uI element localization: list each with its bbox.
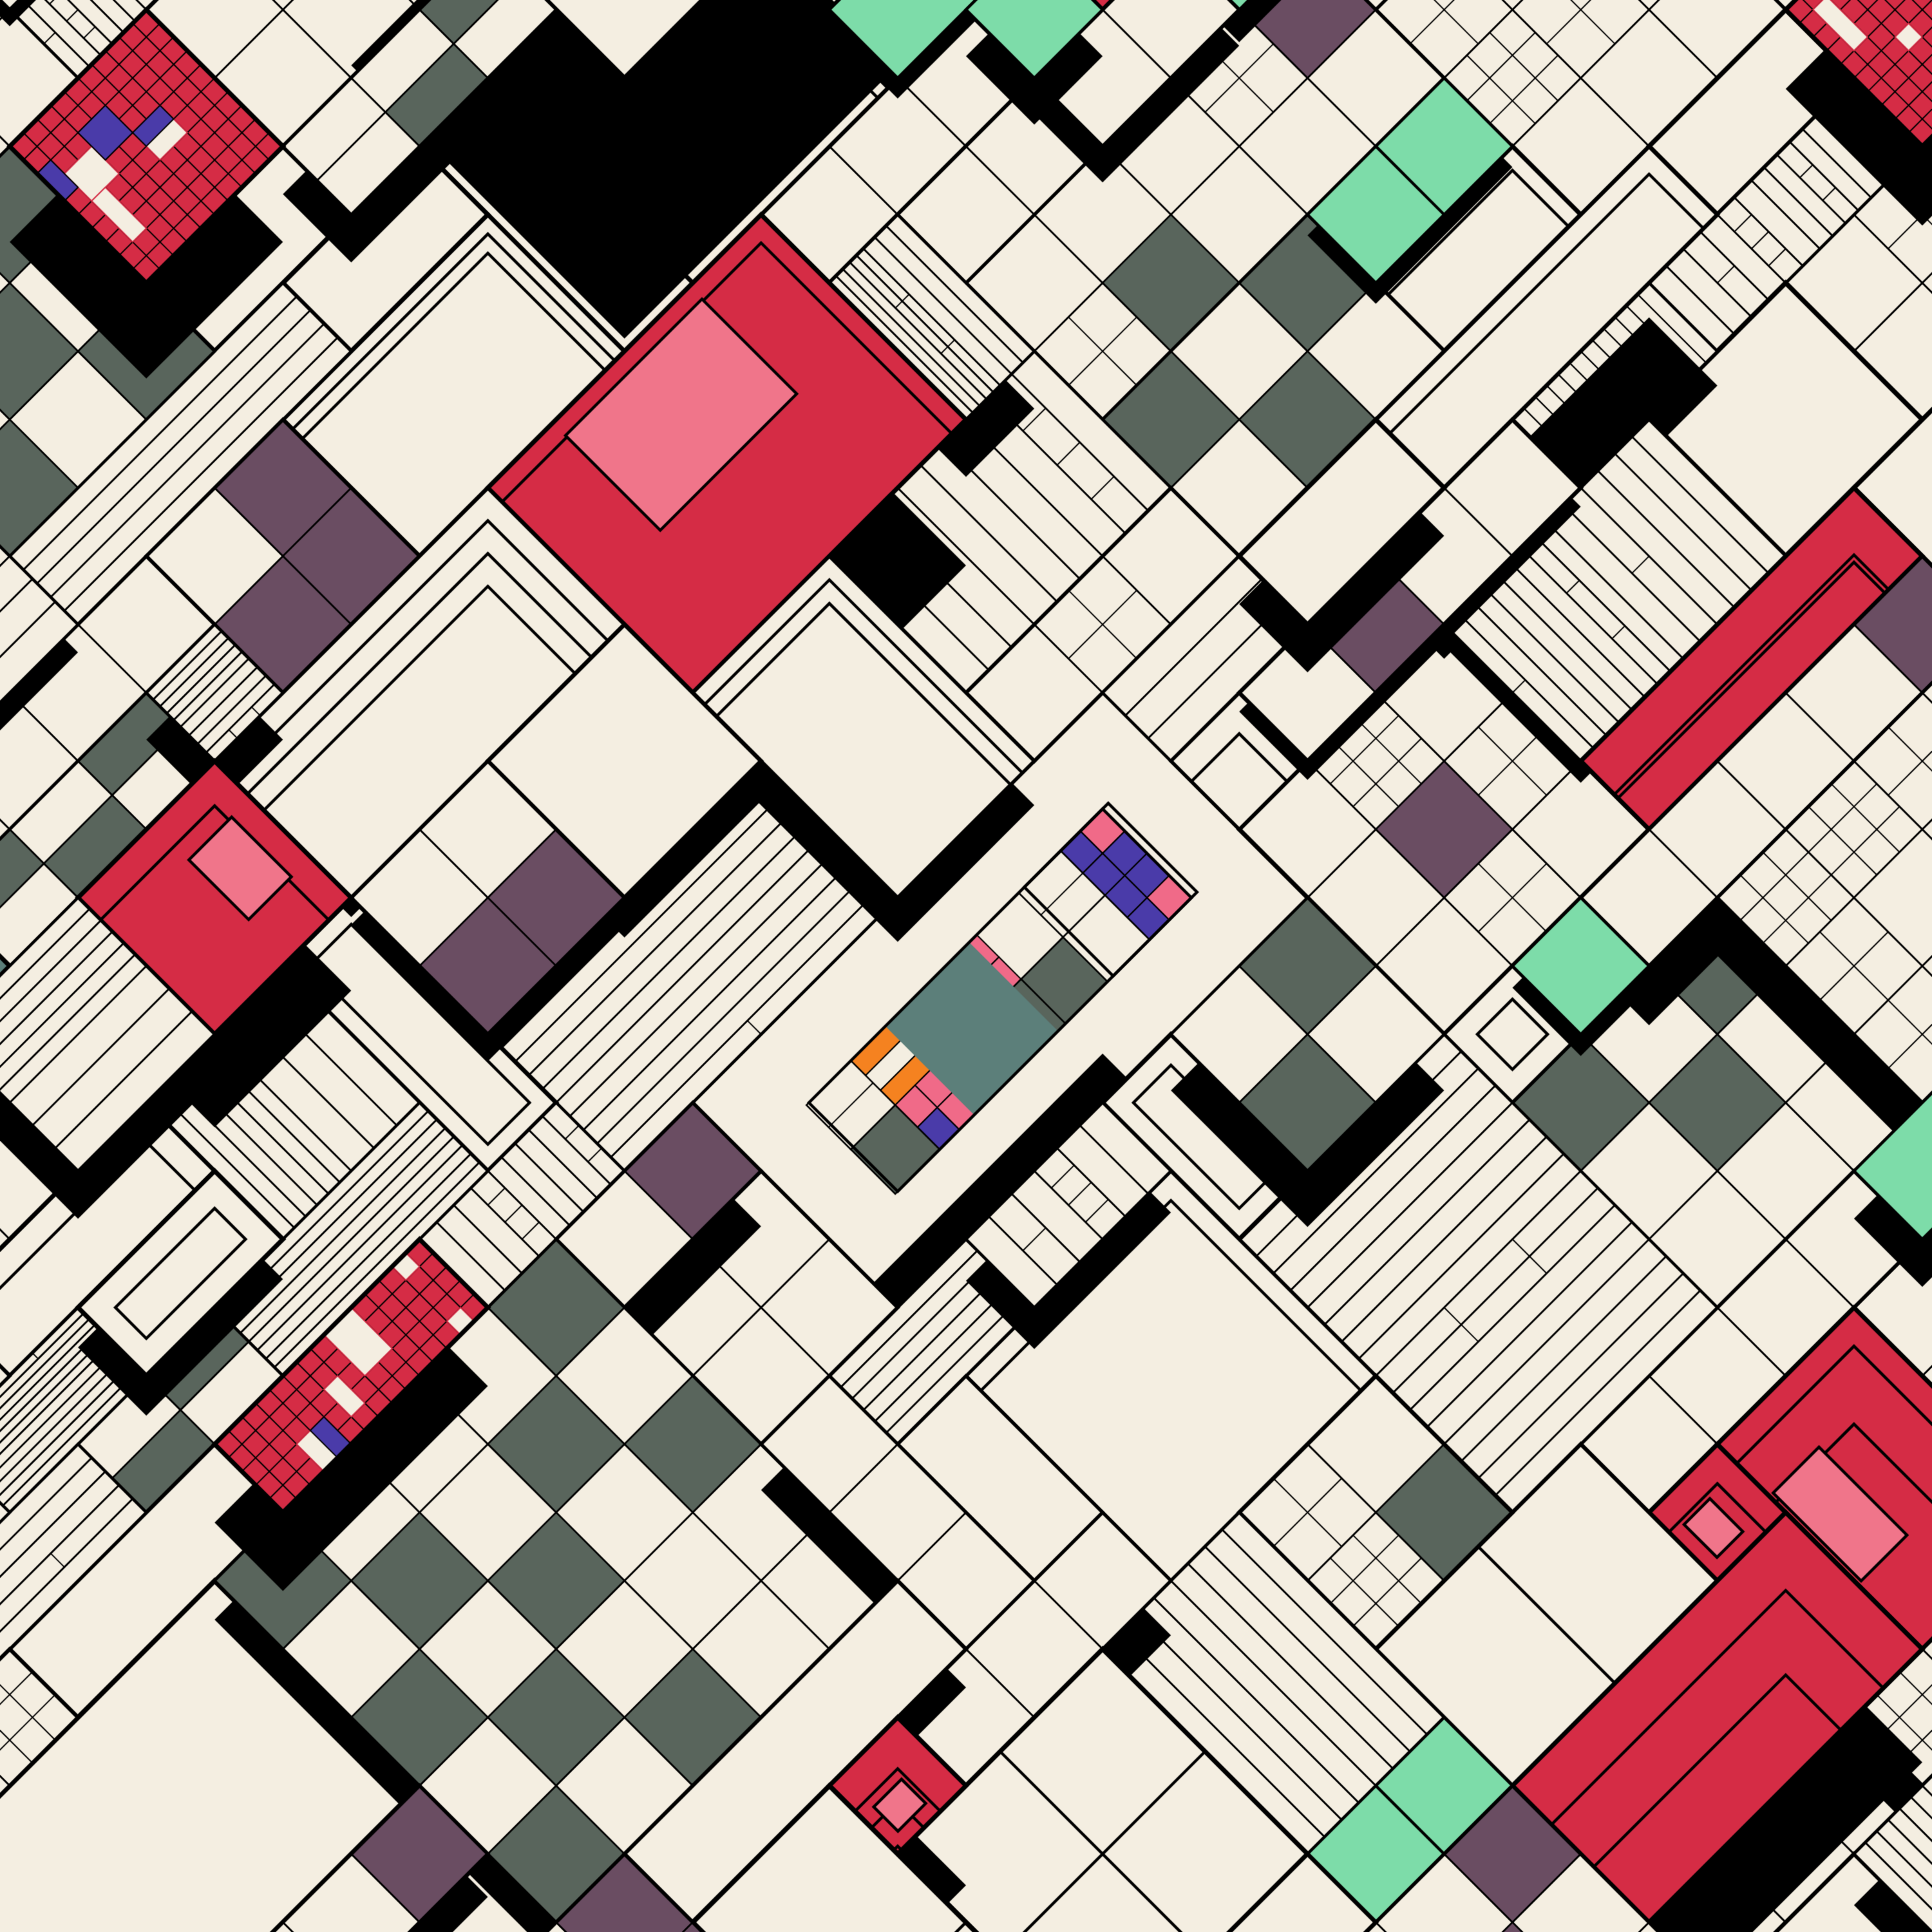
generative-artwork-canvas: [0, 0, 1932, 1932]
artwork-root: [0, 0, 1932, 1932]
